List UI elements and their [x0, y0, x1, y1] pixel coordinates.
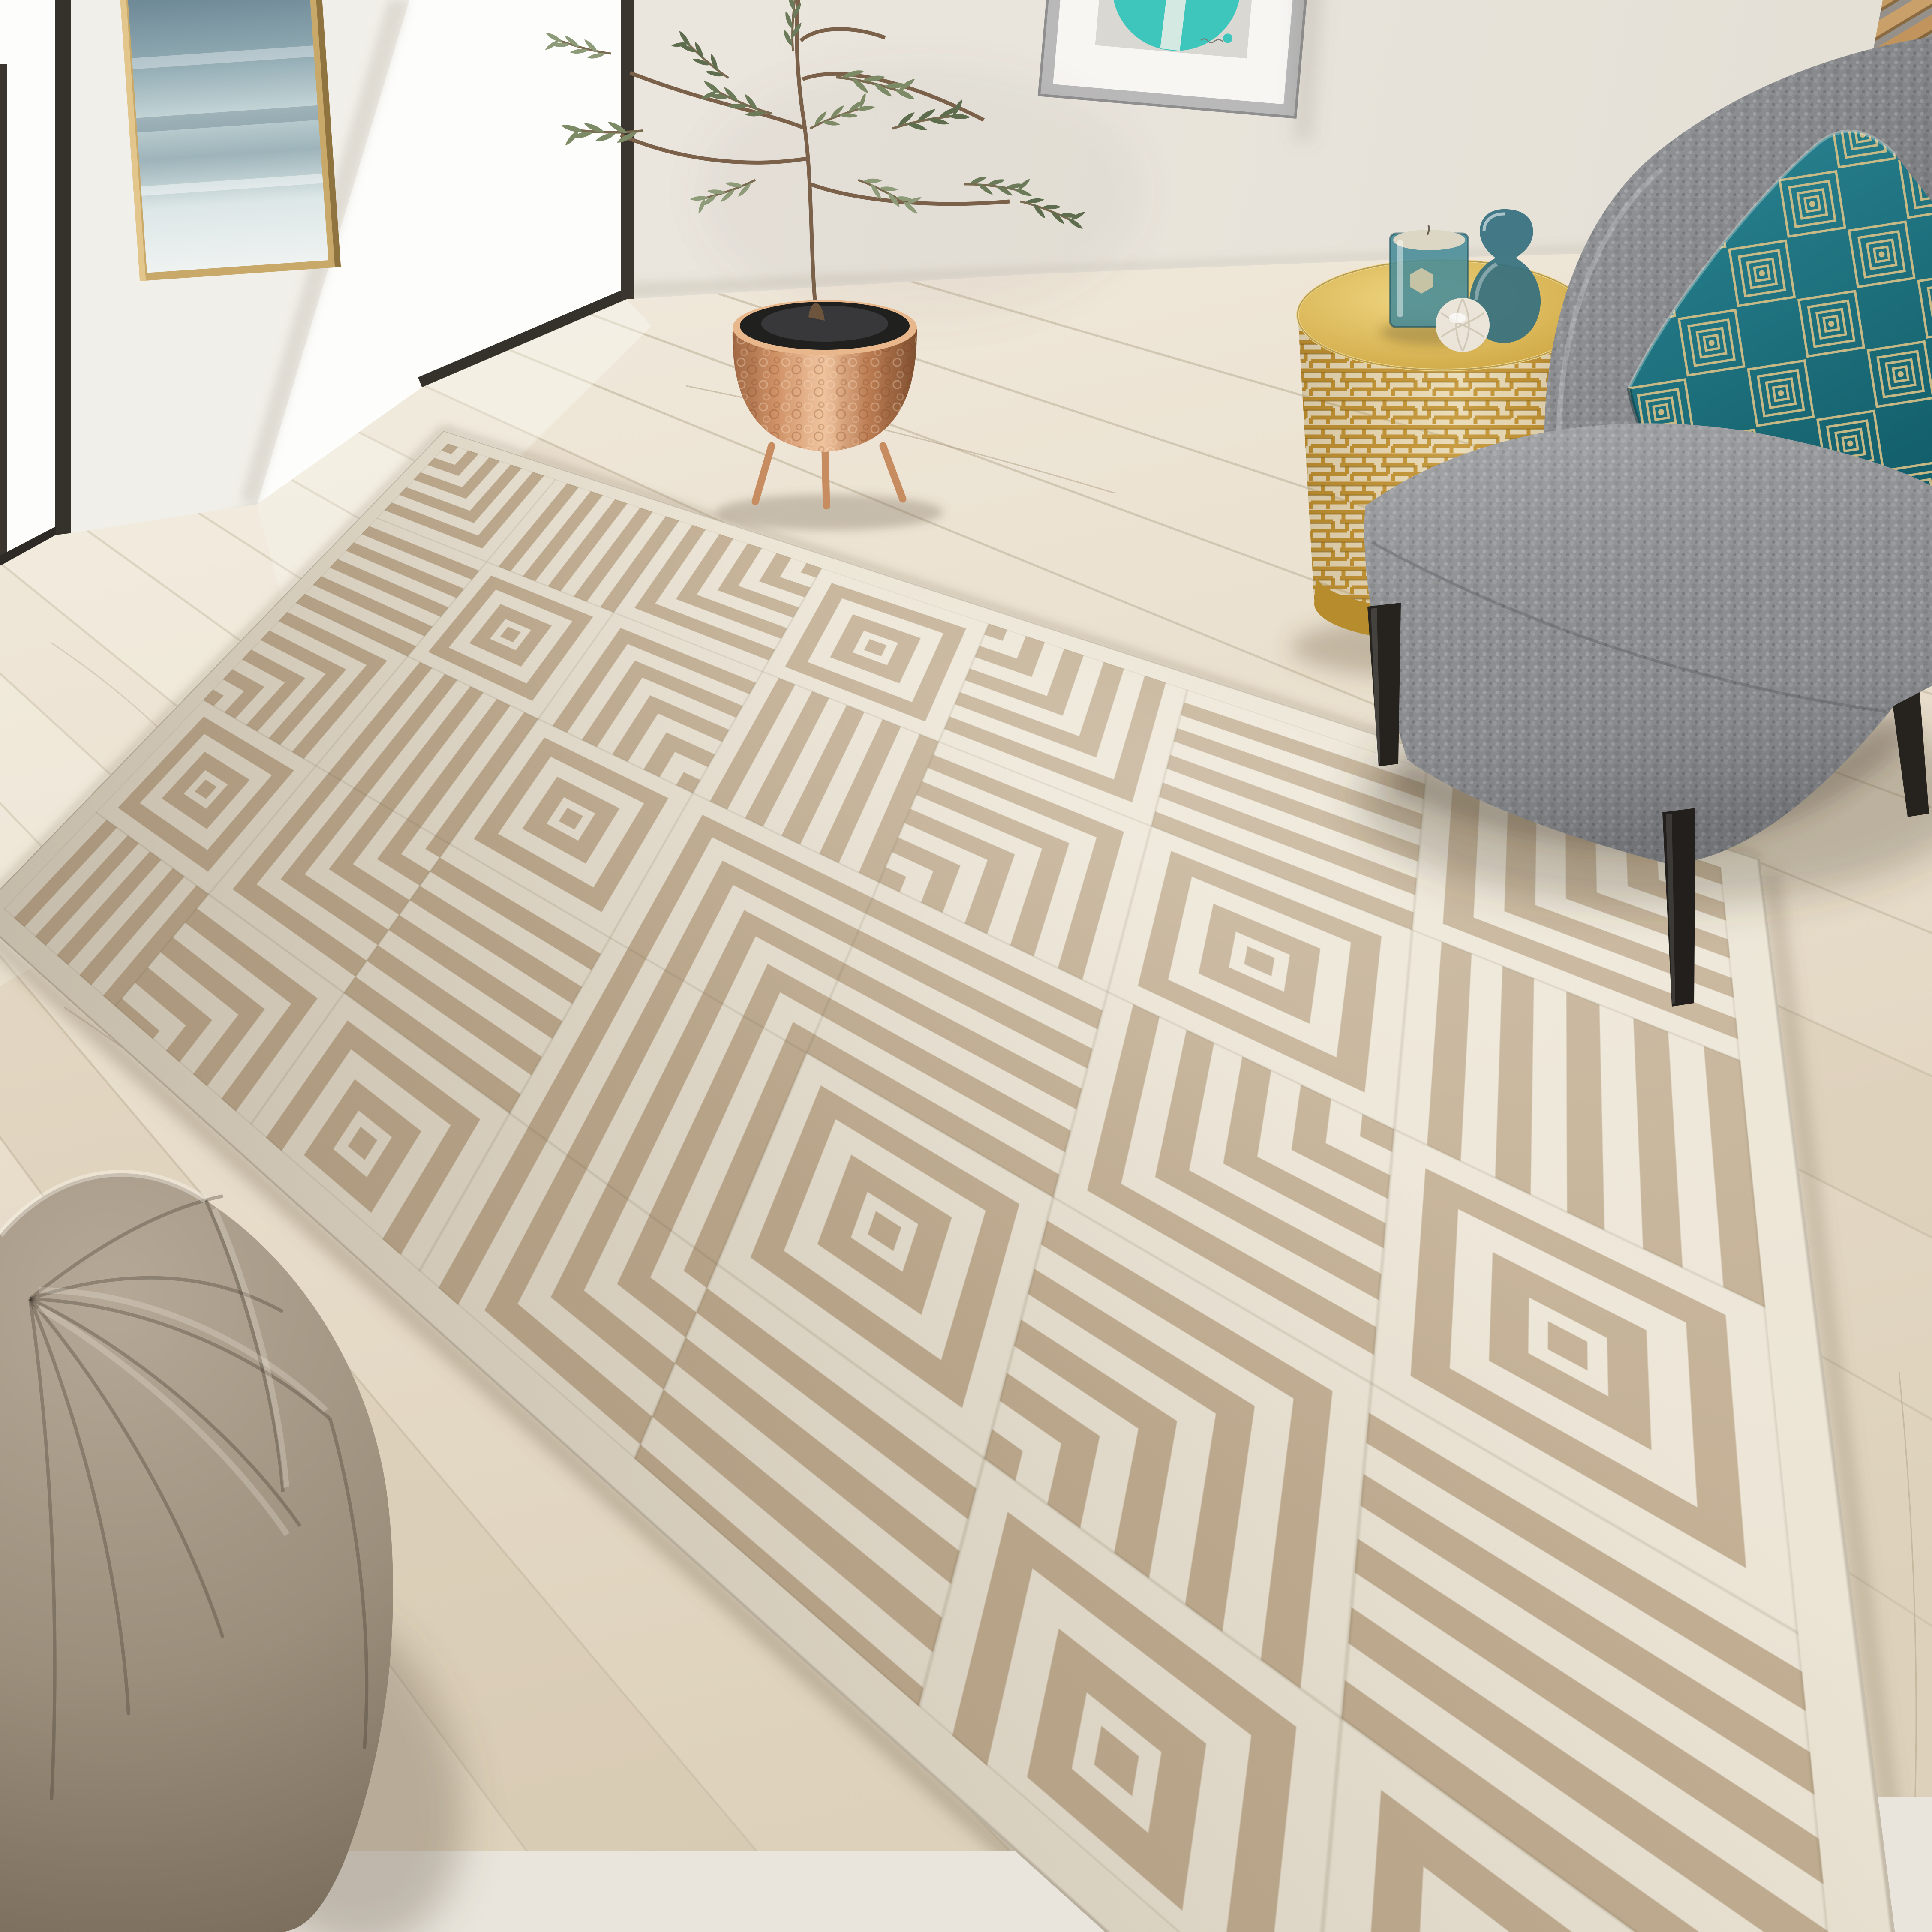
living-room-scene [0, 0, 1932, 1932]
urchin-ornament [1436, 298, 1490, 352]
foreground-layer [0, 0, 1932, 1932]
pouf [0, 1173, 393, 1932]
table-items [1380, 209, 1541, 352]
